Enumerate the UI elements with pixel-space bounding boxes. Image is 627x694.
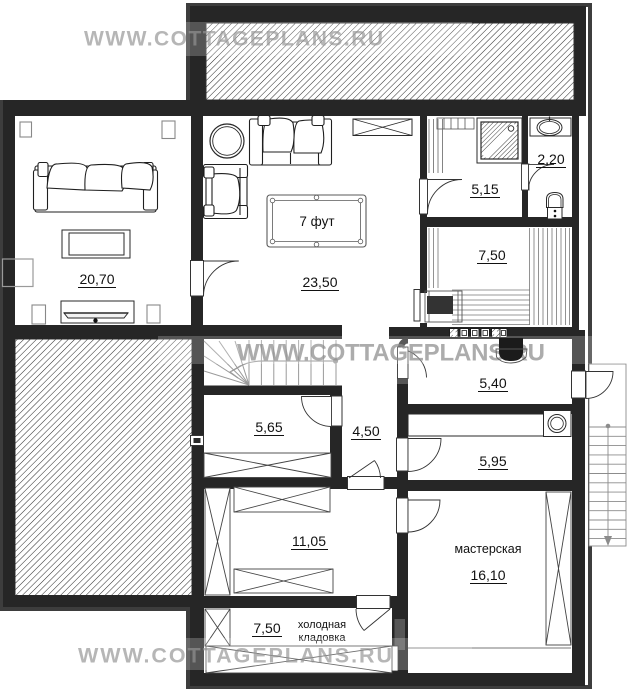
svg-text:WWW.COTTAGEPLANS.RU: WWW.COTTAGEPLANS.RU [78, 644, 392, 668]
svg-text:11,05: 11,05 [292, 533, 326, 549]
svg-text:4,50: 4,50 [352, 423, 379, 439]
svg-text:5,40: 5,40 [479, 375, 506, 391]
svg-text:мастерская: мастерская [455, 542, 522, 556]
svg-text:20,70: 20,70 [79, 271, 114, 287]
svg-text:холодная: холодная [298, 619, 346, 631]
svg-text:7 фут: 7 фут [299, 214, 334, 229]
svg-text:7,50: 7,50 [253, 620, 280, 636]
svg-text:WWW.COTTAGEPLANS.RU: WWW.COTTAGEPLANS.RU [237, 340, 545, 367]
svg-text:5,65: 5,65 [255, 419, 282, 435]
svg-text:23,50: 23,50 [302, 274, 337, 290]
svg-text:5,15: 5,15 [471, 181, 498, 197]
svg-text:5,95: 5,95 [479, 453, 506, 469]
svg-text:7,50: 7,50 [478, 247, 505, 263]
svg-text:2,20: 2,20 [537, 151, 564, 167]
svg-text:16,10: 16,10 [470, 567, 505, 583]
svg-text:WWW.COTTAGEPLANS.RU: WWW.COTTAGEPLANS.RU [84, 28, 383, 51]
